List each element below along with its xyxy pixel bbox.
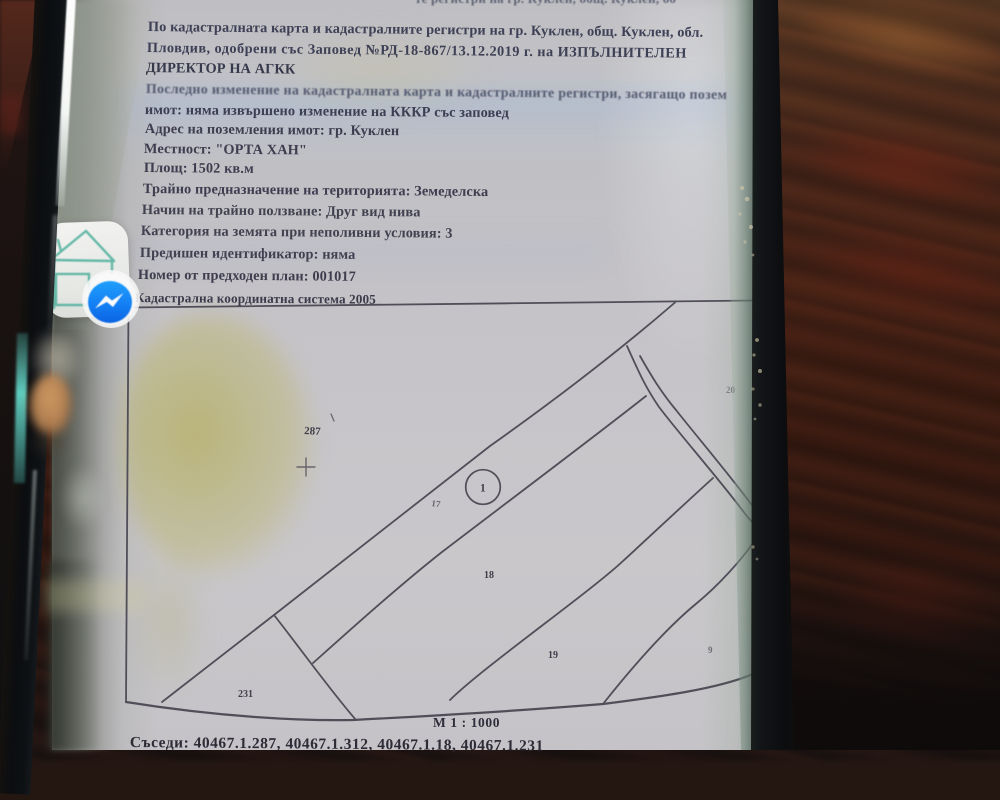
svg-text:17: 17 xyxy=(431,498,442,509)
svg-text:231: 231 xyxy=(238,689,253,700)
svg-text:1: 1 xyxy=(480,483,486,495)
svg-text:9: 9 xyxy=(708,645,713,655)
svg-text:19: 19 xyxy=(548,650,558,661)
svg-text:18: 18 xyxy=(484,570,494,581)
svg-text:287: 287 xyxy=(304,425,322,438)
